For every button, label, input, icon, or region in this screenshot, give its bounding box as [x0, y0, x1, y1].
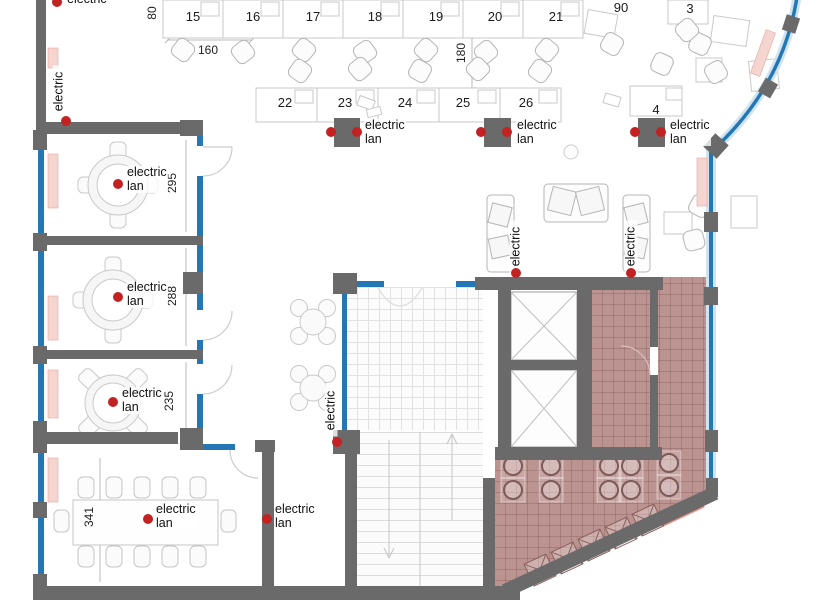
electric-outlet-dot — [332, 437, 342, 447]
electric-outlet-dot — [262, 514, 272, 524]
dimension-160: 160 — [190, 43, 226, 57]
outlet-label-column-4: electriclan — [669, 119, 711, 146]
outlet-label-room3: electriclan — [121, 387, 163, 414]
dimension-80: 80 — [145, 0, 159, 28]
electric-outlet-dot — [656, 127, 666, 137]
desk-number-19: 19 — [424, 9, 448, 24]
desk-number-21: 21 — [544, 9, 568, 24]
outlet-label-conference-wall: electriclan — [274, 503, 316, 530]
outlet-label-left-wall: electric — [53, 66, 66, 118]
outlet-label-top-edge: electric — [66, 0, 108, 7]
dimension-341: 341 — [82, 502, 96, 532]
electric-outlet-dot — [502, 127, 512, 137]
electric-outlet-dot — [113, 179, 123, 189]
electric-outlet-dot — [511, 268, 521, 278]
electric-outlet-dot — [108, 397, 118, 407]
electric-outlet-dot — [113, 292, 123, 302]
workstation-desks-row2 — [256, 88, 621, 122]
office-floor-plan: 15 16 17 18 19 20 21 90 3 22 23 24 25 26… — [0, 0, 820, 600]
electric-outlet-dot — [326, 127, 336, 137]
outlet-label-lounge-left: electric — [510, 221, 523, 273]
desk-number-90: 90 — [609, 0, 633, 15]
desk-number-16: 16 — [241, 9, 265, 24]
desk-number-24: 24 — [393, 95, 417, 110]
outlet-label-lounge-right: electric — [625, 221, 638, 273]
outlet-label-stair-wall: electric — [325, 385, 338, 437]
electric-outlet-dot — [476, 127, 486, 137]
electric-outlet-dot — [61, 116, 71, 126]
outlet-label-room1: electriclan — [126, 166, 168, 193]
outlet-label-column-23: electriclan — [364, 119, 406, 146]
outlet-label-room2: electriclan — [126, 281, 168, 308]
outlet-label-column-26: electriclan — [516, 119, 558, 146]
desk-number-26: 26 — [514, 95, 538, 110]
desk-number-3: 3 — [678, 1, 702, 16]
floorplan-drawing — [0, 0, 820, 600]
desk-number-20: 20 — [483, 9, 507, 24]
desk-number-15: 15 — [181, 9, 205, 24]
dimension-235: 235 — [162, 386, 176, 416]
stair-markings — [384, 432, 457, 586]
desk-number-4: 4 — [644, 102, 668, 117]
desk-number-18: 18 — [363, 9, 387, 24]
electric-outlet-dot — [630, 127, 640, 137]
dimension-180: 180 — [454, 38, 468, 68]
outlet-label-conference: electriclan — [155, 503, 197, 530]
desk-number-17: 17 — [301, 9, 325, 24]
desk-number-23: 23 — [333, 95, 357, 110]
electric-outlet-dot — [143, 514, 153, 524]
electric-outlet-dot — [626, 268, 636, 278]
desk-number-25: 25 — [451, 95, 475, 110]
electric-outlet-dot — [352, 127, 362, 137]
desk-number-22: 22 — [273, 95, 297, 110]
